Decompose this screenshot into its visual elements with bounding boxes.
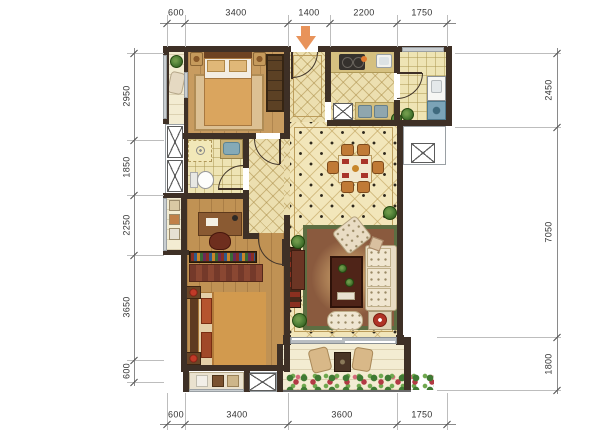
bedroom1-bed-blanket	[204, 78, 252, 126]
wall	[404, 337, 411, 392]
dining-chair	[357, 181, 370, 193]
wall	[184, 50, 188, 72]
toilet-icon	[197, 171, 214, 189]
wall	[397, 126, 403, 345]
placemat	[361, 173, 368, 178]
placemat	[342, 173, 349, 178]
dim-label-top: 2200	[353, 9, 374, 18]
sliding-door-panel	[292, 338, 342, 340]
shelf-item	[169, 200, 180, 211]
wall	[243, 233, 259, 239]
dim-label-bottom: 3400	[226, 411, 247, 420]
seat-pillow	[196, 375, 208, 387]
fridge-icon	[333, 103, 353, 120]
bedroom1-pillow	[207, 60, 225, 72]
wall	[181, 193, 249, 199]
wall	[181, 196, 187, 252]
seat-pillow	[212, 375, 224, 387]
sofa-cushion	[367, 288, 391, 307]
corridor-passage-floor	[284, 139, 290, 215]
dim-label-right: 2450	[545, 79, 554, 100]
wall	[184, 98, 188, 135]
wall	[181, 365, 290, 371]
extension-line	[288, 15, 289, 47]
plant-icon	[338, 264, 347, 273]
wall	[394, 52, 400, 73]
basin-icon	[374, 105, 388, 118]
floor-drain-icon	[196, 146, 205, 155]
bedroom1-nightstand-lamp	[253, 52, 266, 66]
plant-icon	[170, 55, 183, 68]
sink-icon	[223, 142, 240, 155]
placemat	[342, 159, 349, 164]
wall	[446, 46, 452, 126]
center-dish	[352, 165, 359, 172]
dining-chair	[357, 144, 370, 156]
books	[191, 253, 255, 261]
desk-lamp-icon	[232, 215, 238, 221]
plant-icon	[345, 278, 354, 287]
sliding-door-panel	[345, 341, 395, 343]
dim-label-top: 600	[168, 9, 184, 18]
balcony-railing	[283, 390, 411, 392]
desk-paper	[206, 218, 218, 226]
dimension-line-right	[557, 48, 558, 394]
wall	[327, 120, 400, 126]
shelf-item	[169, 214, 180, 225]
dim-label-left: 1850	[123, 156, 132, 177]
dim-label-bottom: 1750	[411, 411, 432, 420]
appliance-door	[431, 80, 442, 93]
dining-chair	[341, 144, 354, 156]
kettle-icon	[361, 56, 367, 62]
wall	[284, 52, 290, 139]
dim-label-left: 600	[123, 363, 132, 379]
dim-label-left: 2950	[123, 85, 132, 106]
dining-chair	[372, 161, 384, 174]
shelf-item	[169, 228, 180, 240]
wall	[243, 190, 249, 199]
wall	[284, 215, 290, 372]
master-bed-blanket	[212, 292, 266, 366]
wall	[396, 335, 404, 345]
kitchen-sink-basin	[379, 57, 389, 65]
basin-icon	[358, 105, 372, 118]
window	[189, 389, 244, 392]
ottoman-bench	[327, 311, 363, 330]
flower-planter	[286, 373, 434, 390]
dim-label-bottom: 600	[168, 411, 184, 420]
dim-label-bottom: 3600	[331, 411, 352, 420]
plant-icon	[291, 235, 305, 249]
master-pillow	[201, 332, 212, 358]
wall	[184, 135, 188, 199]
extension-line	[455, 127, 561, 128]
ac-unit-icon	[167, 160, 183, 192]
seat-pillow	[227, 375, 239, 387]
entrance-arrow-icon	[296, 36, 316, 50]
plant-icon	[292, 313, 307, 328]
dimension-line-left	[134, 48, 135, 386]
decor-plate	[373, 313, 387, 327]
sofa-cushion	[367, 268, 391, 287]
dim-label-left: 3650	[123, 296, 132, 317]
dimension-line-bottom	[160, 424, 456, 425]
extension-line	[185, 15, 186, 47]
dim-label-top: 1400	[298, 9, 319, 18]
window	[163, 198, 167, 251]
extension-line	[330, 15, 331, 47]
dim-label-top: 1750	[411, 9, 432, 18]
balcony-chair	[351, 347, 374, 373]
nightstand-lamp	[186, 352, 201, 365]
balcony-table	[334, 352, 351, 372]
window	[402, 47, 444, 52]
extension-line	[437, 390, 561, 391]
nightstand-lamp	[186, 286, 201, 299]
wall	[400, 120, 452, 126]
plant-icon	[383, 206, 397, 220]
ac-unit-icon	[411, 143, 435, 163]
window	[163, 55, 167, 119]
dim-label-left: 2250	[123, 214, 132, 235]
dim-label-right: 1800	[545, 353, 554, 374]
dining-chair	[341, 181, 354, 193]
extension-line	[437, 337, 561, 338]
floor-plan: 600 3400 1400 2200 1750 600 3400 3600 17…	[0, 0, 607, 444]
desk-chair	[209, 232, 231, 250]
bedroom1-wardrobe	[266, 54, 284, 112]
bedroom1-pillow	[229, 60, 247, 72]
washer-icon	[427, 101, 446, 120]
burner-icon	[342, 57, 353, 68]
ac-unit-icon	[167, 126, 183, 158]
dim-label-right: 7050	[545, 221, 554, 242]
dimension-line-top	[160, 23, 456, 24]
wall	[325, 52, 331, 102]
extension-line	[397, 15, 398, 47]
ac-unit-icon	[249, 373, 276, 391]
wall	[243, 139, 249, 168]
dresser	[189, 264, 263, 282]
placemat	[361, 159, 368, 164]
bedroom1-nightstand-lamp	[190, 52, 203, 66]
tray	[337, 292, 355, 300]
dim-label-top: 3400	[225, 9, 246, 18]
dining-chair	[327, 161, 339, 174]
plant-stand	[291, 250, 305, 290]
extension-line	[447, 15, 448, 47]
extension-line	[167, 15, 168, 47]
extension-line	[455, 53, 561, 54]
window	[184, 72, 188, 98]
wall	[277, 344, 283, 392]
wall	[181, 250, 187, 372]
wall	[163, 46, 291, 52]
master-pillow	[201, 298, 212, 324]
